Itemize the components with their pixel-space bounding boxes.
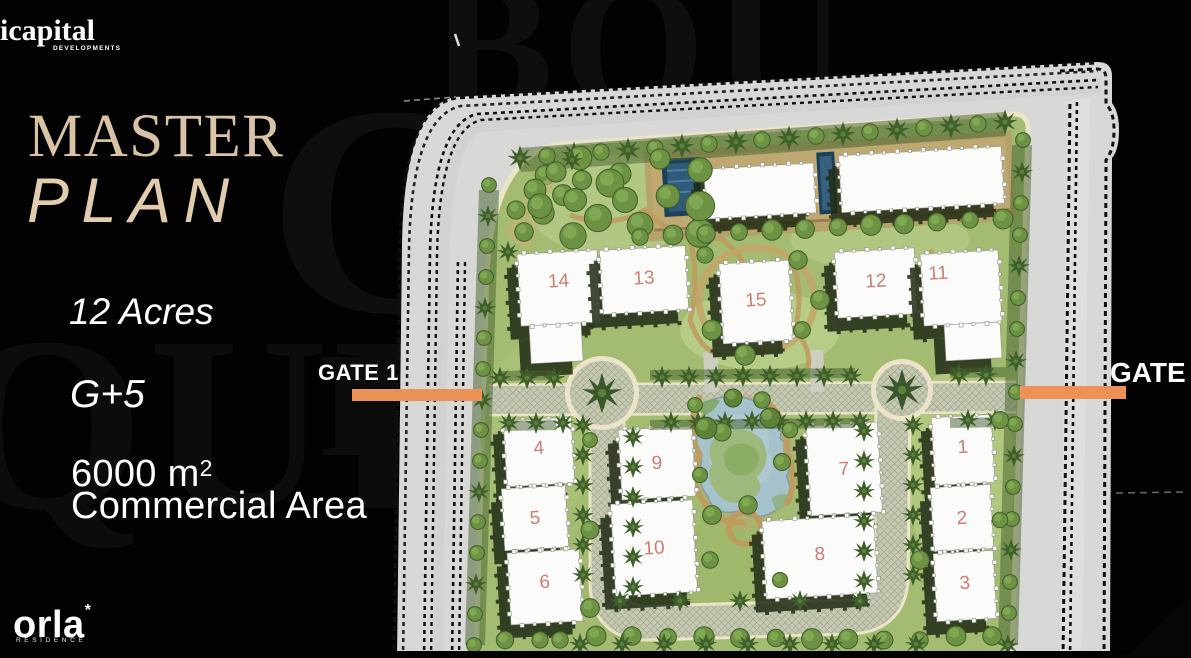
svg-text:GATE 1: GATE 1 xyxy=(318,360,399,385)
svg-text:8: 8 xyxy=(814,544,826,566)
svg-text:2: 2 xyxy=(956,508,968,530)
svg-text:GATE: GATE xyxy=(1110,357,1186,388)
svg-text:6: 6 xyxy=(539,572,551,594)
svg-text:12: 12 xyxy=(865,270,887,292)
svg-text:14: 14 xyxy=(547,270,570,292)
svg-text:5: 5 xyxy=(529,508,541,530)
svg-text:11: 11 xyxy=(928,263,949,285)
svg-text:15: 15 xyxy=(745,289,767,311)
svg-text:7: 7 xyxy=(838,459,850,481)
svg-text:13: 13 xyxy=(633,267,655,289)
svg-text:4: 4 xyxy=(533,438,545,460)
svg-text:3: 3 xyxy=(959,573,971,595)
svg-text:9: 9 xyxy=(651,453,663,475)
svg-text:1: 1 xyxy=(957,437,969,459)
svg-text:10: 10 xyxy=(643,537,665,559)
